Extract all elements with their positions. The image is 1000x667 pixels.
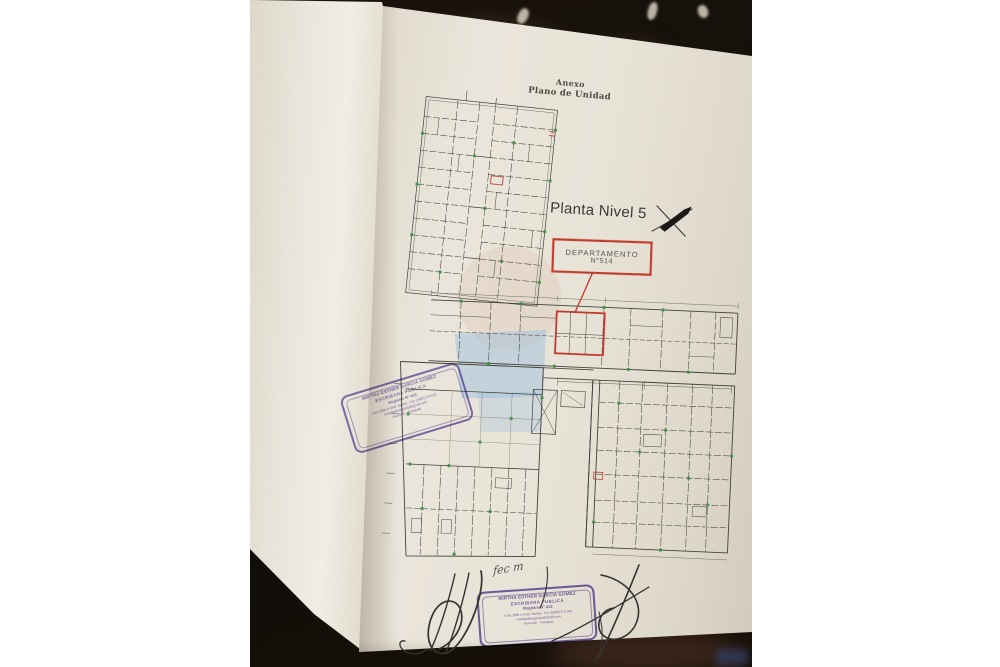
screenshot-canvas: Anexo Plano de Unidad — [0, 0, 1000, 667]
document-photo: Anexo Plano de Unidad — [250, 0, 752, 667]
signatures-drawing — [250, 0, 752, 667]
